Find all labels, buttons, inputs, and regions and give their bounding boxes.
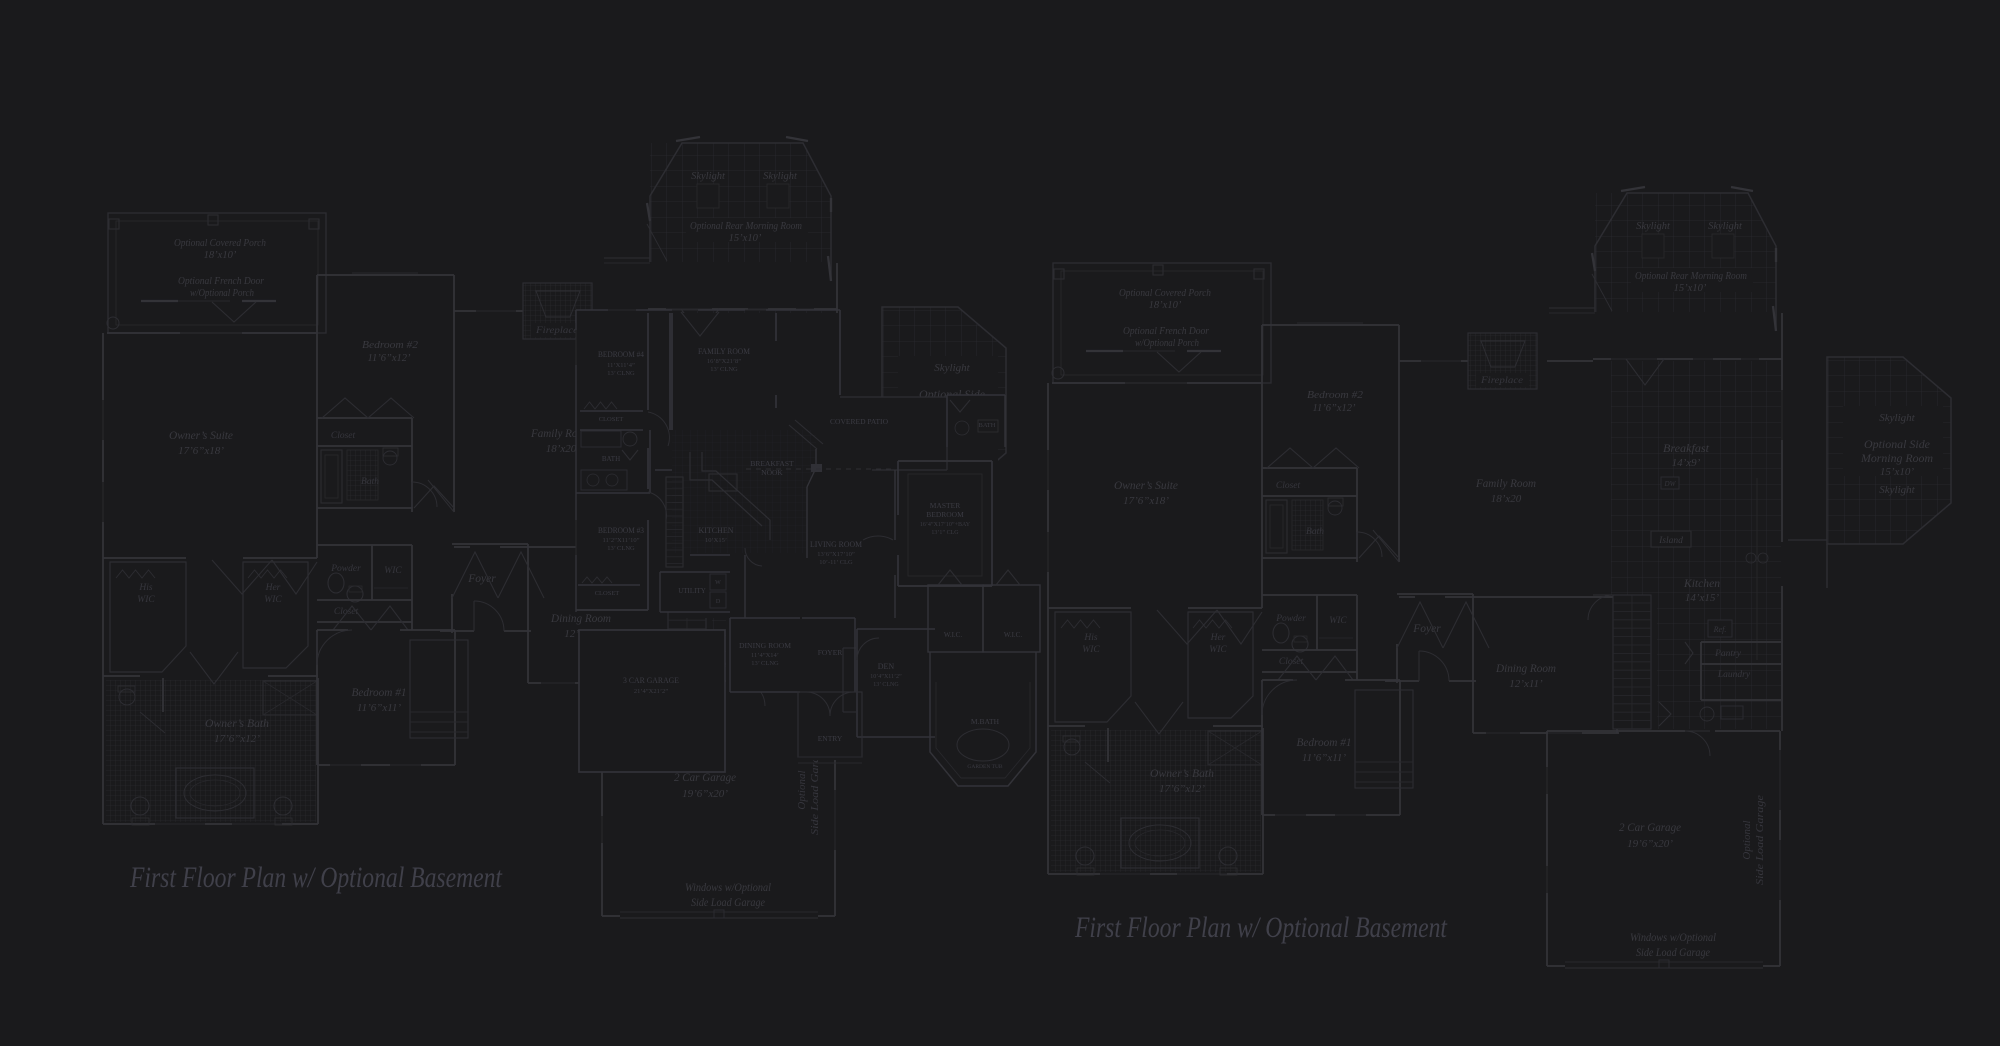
svg-text:18’x20: 18’x20 [546,443,577,455]
svg-text:11’6”x12’: 11’6”x12’ [368,353,411,364]
svg-text:w/Optional Porch: w/Optional Porch [1135,337,1199,349]
svg-text:WIC: WIC [264,595,282,605]
svg-text:DINING ROOM: DINING ROOM [739,641,791,650]
svg-text:MASTER: MASTER [930,501,960,510]
svg-text:His: His [1083,633,1098,643]
svg-text:Bedroom #2: Bedroom #2 [362,339,419,351]
svg-text:COVERED PATIO: COVERED PATIO [830,417,889,426]
svg-text:w/Optional Porch: w/Optional Porch [190,287,254,299]
svg-text:DEN: DEN [878,662,895,671]
svg-text:14’x9’: 14’x9’ [1672,457,1701,469]
svg-text:13’ CLNG: 13’ CLNG [607,370,635,377]
svg-text:11’4”X14’: 11’4”X14’ [751,652,779,659]
svg-text:Optional Side: Optional Side [1864,439,1930,451]
svg-text:11’X11’4”: 11’X11’4” [607,362,635,369]
svg-text:Optional Covered Porch: Optional Covered Porch [1119,287,1211,299]
svg-text:Breakfast: Breakfast [1663,443,1710,455]
svg-text:WIC: WIC [1329,616,1347,626]
svg-text:ENTRY: ENTRY [818,734,843,743]
svg-text:Pantry: Pantry [1714,649,1742,659]
svg-text:DW: DW [1664,480,1677,488]
svg-text:Skylight: Skylight [934,362,970,374]
svg-text:11’6”x11’: 11’6”x11’ [1302,752,1347,764]
svg-text:Powder: Powder [330,564,361,574]
svg-text:Optional Rear Morning Room: Optional Rear Morning Room [1635,271,1747,282]
svg-text:W: W [715,580,721,586]
svg-text:BEDROOM: BEDROOM [926,510,964,519]
svg-text:17’6”x12’: 17’6”x12’ [214,733,260,745]
svg-text:3 CAR GARAGE: 3 CAR GARAGE [623,676,679,685]
svg-text:Optional French Door: Optional French Door [178,275,265,287]
svg-text:Dining Room: Dining Room [1495,663,1556,675]
svg-text:W.I.C.: W.I.C. [944,631,962,639]
svg-text:11’2”X11’10”: 11’2”X11’10” [602,537,639,544]
svg-text:15’x10’: 15’x10’ [1674,283,1707,294]
svg-text:Windows w/Optional: Windows w/Optional [685,882,771,894]
svg-text:Bedroom #2: Bedroom #2 [1307,389,1364,401]
svg-text:M.BATH: M.BATH [971,717,1000,726]
svg-text:Foyer: Foyer [467,573,496,585]
svg-text:17’6”x18’: 17’6”x18’ [1123,495,1169,507]
svg-text:Windows w/Optional: Windows w/Optional [1630,932,1716,944]
svg-text:13’ CLNG: 13’ CLNG [710,366,738,373]
svg-text:Island: Island [1658,536,1683,546]
svg-text:First Floor Plan w/ Optional: First Floor Plan w/ Optional Basement [129,861,502,894]
svg-text:15’x10’: 15’x10’ [729,233,762,244]
svg-text:Owner’s Suite: Owner’s Suite [169,430,233,442]
svg-text:13’ CLNG: 13’ CLNG [607,545,635,552]
svg-text:FAMILY ROOM: FAMILY ROOM [698,347,750,356]
svg-text:Skylight: Skylight [1879,484,1915,496]
svg-text:GARDEN TUB: GARDEN TUB [967,764,1003,770]
svg-text:Optional: Optional [796,770,808,809]
svg-text:BEDROOM #3: BEDROOM #3 [598,526,644,535]
svg-text:Closet: Closet [334,607,359,617]
svg-text:Fireplace: Fireplace [535,326,578,336]
svg-text:D: D [716,599,721,605]
svg-text:13’ CLNG: 13’ CLNG [873,682,899,688]
svg-text:17’6”x12’: 17’6”x12’ [1159,783,1205,795]
svg-text:Dining Room: Dining Room [550,613,611,625]
svg-text:15’x10’: 15’x10’ [1880,466,1915,478]
svg-text:WIC: WIC [1082,645,1100,655]
svg-text:2 Car Garage: 2 Car Garage [1619,822,1681,834]
svg-text:14’x15’: 14’x15’ [1685,592,1720,604]
svg-text:Optional French Door: Optional French Door [1123,325,1210,337]
svg-text:17’6”x18’: 17’6”x18’ [178,445,224,457]
svg-text:2 Car Garage: 2 Car Garage [674,772,736,784]
svg-text:Morning Room: Morning Room [1860,453,1933,465]
svg-text:Her: Her [1210,633,1226,643]
svg-text:Optional Covered Porch: Optional Covered Porch [174,237,266,249]
svg-text:16’4”X17’10”+BAY: 16’4”X17’10”+BAY [920,522,971,528]
svg-text:Skylight: Skylight [691,171,726,182]
svg-text:11’6”x12’: 11’6”x12’ [1313,403,1356,414]
svg-text:16’8”X21’8”: 16’8”X21’8” [707,358,741,365]
svg-text:Side Load Garage: Side Load Garage [1636,947,1710,959]
svg-text:Skylight: Skylight [763,171,798,182]
svg-text:LIVING ROOM: LIVING ROOM [810,539,862,549]
svg-text:13’1” CLG: 13’1” CLG [931,530,959,536]
svg-text:W.I.C.: W.I.C. [1004,631,1022,639]
svg-text:WIC: WIC [137,595,155,605]
svg-text:BREAKFAST: BREAKFAST [750,459,794,468]
svg-text:11’6”x11’: 11’6”x11’ [357,702,402,714]
svg-text:BEDROOM #4: BEDROOM #4 [598,350,644,359]
svg-text:Skylight: Skylight [1636,221,1671,232]
svg-text:10’4”X11’2”: 10’4”X11’2” [870,674,902,680]
svg-text:Optional Rear Morning Room: Optional Rear Morning Room [690,221,802,232]
svg-text:Family Room: Family Room [1475,478,1536,490]
svg-text:Skylight: Skylight [1879,412,1915,424]
svg-text:10’-11’ CLG: 10’-11’ CLG [819,559,853,566]
svg-text:Bedroom #1: Bedroom #1 [1297,737,1352,749]
svg-text:Side Load Garage: Side Load Garage [691,897,765,909]
svg-text:Bedroom #1: Bedroom #1 [352,687,407,699]
svg-text:CLOSET: CLOSET [595,590,620,597]
svg-text:18’x10’: 18’x10’ [204,250,237,261]
svg-text:Owner’s Suite: Owner’s Suite [1114,480,1178,492]
svg-text:18’x10’: 18’x10’ [1149,300,1182,311]
svg-text:Skylight: Skylight [1708,221,1743,232]
svg-text:Closet: Closet [331,431,356,441]
svg-text:Foyer: Foyer [1412,623,1441,635]
svg-text:WIC: WIC [384,566,402,576]
svg-text:FOYER: FOYER [818,648,843,657]
svg-text:Bath: Bath [361,477,379,487]
svg-text:12’x11’: 12’x11’ [1509,678,1543,690]
svg-text:13’ CLNG: 13’ CLNG [751,660,779,667]
svg-text:Side Load Garage: Side Load Garage [1754,795,1766,885]
svg-text:Her: Her [265,583,281,593]
svg-text:First Floor Plan w/ Optional: First Floor Plan w/ Optional Basement [1074,911,1447,944]
svg-text:Closet: Closet [1276,481,1301,491]
svg-text:Kitchen: Kitchen [1683,578,1720,590]
svg-text:His: His [138,583,153,593]
svg-text:Closet: Closet [1279,657,1304,667]
svg-text:Ref.: Ref. [1713,625,1727,634]
svg-text:19’6”x20’: 19’6”x20’ [682,788,728,800]
svg-text:Laundry: Laundry [1717,670,1751,680]
svg-text:13’6”X17’10”: 13’6”X17’10” [817,551,855,558]
svg-text:Fireplace: Fireplace [1480,376,1523,386]
svg-text:Owner’s Bath: Owner’s Bath [205,718,269,730]
svg-text:KITCHEN: KITCHEN [698,526,733,535]
svg-text:18’x20: 18’x20 [1491,493,1522,505]
svg-text:Powder: Powder [1275,614,1306,624]
svg-text:19’6”x20’: 19’6”x20’ [1627,838,1673,850]
svg-text:BATH: BATH [979,422,996,429]
svg-text:CLOSET: CLOSET [599,416,624,423]
svg-text:BATH: BATH [602,455,620,463]
svg-text:Owner’s Bath: Owner’s Bath [1150,768,1214,780]
svg-text:WIC: WIC [1209,645,1227,655]
svg-text:Bath: Bath [1306,527,1324,537]
svg-text:10’X15’: 10’X15’ [705,537,727,544]
svg-text:UTILITY: UTILITY [678,587,706,595]
svg-text:21’4”X21’2”: 21’4”X21’2” [634,688,668,695]
svg-text:Optional: Optional [1741,820,1753,859]
